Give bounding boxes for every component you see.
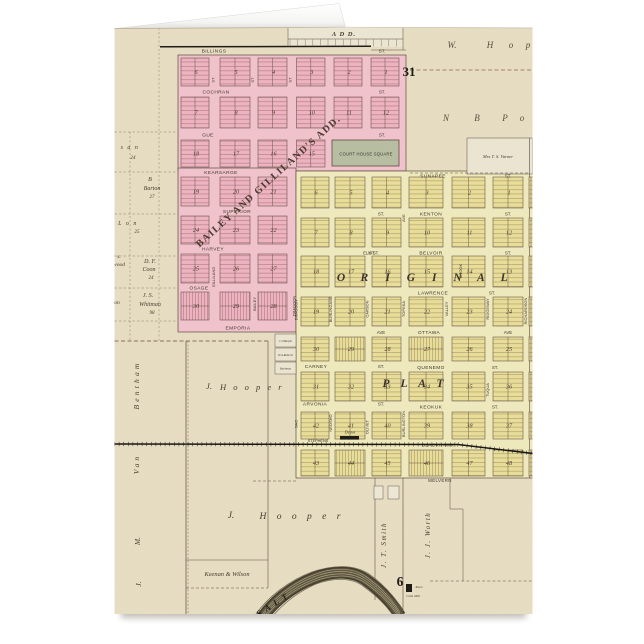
svg-text:ST.: ST. — [492, 365, 498, 370]
svg-text:ARVONIA: ARVONIA — [303, 402, 328, 408]
svg-text:RICHARDSON: RICHARDSON — [523, 297, 528, 324]
svg-text:5: 5 — [349, 190, 352, 197]
svg-text:39: 39 — [423, 423, 430, 430]
svg-text:4: 4 — [386, 190, 389, 197]
svg-text:OTTAWA: OTTAWA — [418, 330, 441, 336]
svg-text:98: 98 — [150, 311, 156, 316]
svg-text:30: 30 — [312, 346, 320, 353]
svg-text:R: R — [359, 272, 368, 284]
svg-text:BILLINGS: BILLINGS — [202, 49, 227, 55]
svg-text:28: 28 — [384, 346, 391, 353]
svg-text:o: o — [509, 40, 514, 50]
svg-text:25: 25 — [506, 346, 512, 353]
svg-text:GUE: GUE — [202, 133, 214, 139]
svg-text:ST.: ST. — [505, 251, 511, 256]
svg-text:COURT HOUSE SQUARE: COURT HOUSE SQUARE — [339, 152, 392, 157]
svg-text:38: 38 — [465, 423, 473, 430]
svg-text:KEARSARGE: KEARSARGE — [204, 170, 237, 176]
svg-text:43: 43 — [313, 460, 319, 467]
svg-text:18: 18 — [193, 151, 200, 158]
svg-text:Coon: Coon — [142, 267, 155, 273]
svg-text:24: 24 — [193, 227, 199, 234]
svg-text:OLIVET: OLIVET — [365, 419, 370, 434]
svg-text:W.A.Roberts: W.A.Roberts — [278, 353, 294, 357]
svg-text:o: o — [520, 113, 525, 123]
svg-text:T: T — [436, 378, 444, 390]
svg-text:26: 26 — [466, 346, 473, 353]
svg-text:10: 10 — [309, 110, 316, 117]
svg-text:J. S.: J. S. — [143, 293, 153, 299]
svg-text:OSAGE: OSAGE — [189, 286, 208, 292]
svg-text:3: 3 — [424, 190, 428, 197]
svg-text:35: 35 — [465, 384, 472, 391]
svg-text:s a n: s a n — [121, 145, 140, 151]
svg-text:N: N — [442, 113, 450, 123]
svg-text:5: 5 — [234, 69, 237, 76]
svg-text:ELM ST.: ELM ST. — [363, 251, 379, 256]
svg-text:Bentham: Bentham — [132, 360, 141, 409]
svg-text:Keen: Keen — [415, 585, 423, 589]
svg-text:ST.: ST. — [505, 212, 511, 217]
svg-text:14: 14 — [466, 269, 472, 276]
svg-text:Mrs T. S. Varner: Mrs T. S. Varner — [482, 154, 513, 159]
svg-text:Depot: Depot — [344, 430, 357, 435]
svg-text:27: 27 — [270, 266, 277, 273]
svg-text:ST.: ST. — [378, 212, 384, 217]
svg-text:20: 20 — [348, 309, 355, 316]
svg-text:44: 44 — [348, 460, 354, 467]
svg-text:30: 30 — [192, 303, 200, 310]
svg-text:D. F.: D. F. — [143, 259, 156, 265]
svg-text:47: 47 — [466, 460, 473, 467]
svg-text:Barton: Barton — [144, 186, 161, 192]
svg-text:27: 27 — [424, 346, 431, 353]
svg-text:11: 11 — [346, 110, 352, 117]
svg-text:24: 24 — [149, 276, 155, 281]
svg-text:A: A — [476, 272, 485, 284]
svg-text:4: 4 — [272, 69, 275, 76]
svg-text:48: 48 — [506, 460, 513, 467]
svg-text:24: 24 — [506, 309, 512, 316]
svg-text:P: P — [501, 113, 508, 123]
svg-text:BURLINGTON: BURLINGTON — [401, 411, 406, 437]
svg-text:ST.: ST. — [379, 49, 386, 54]
svg-text:Van: Van — [132, 454, 141, 474]
svg-text:L: L — [500, 272, 508, 284]
svg-text:46: 46 — [424, 460, 431, 467]
svg-text:25: 25 — [135, 230, 141, 235]
svg-text:19: 19 — [193, 189, 199, 196]
svg-text:B: B — [148, 177, 152, 183]
svg-text:ST.: ST. — [378, 364, 384, 369]
svg-text:22: 22 — [270, 227, 276, 234]
svg-text:36: 36 — [505, 384, 513, 391]
svg-text:s.: s. — [117, 254, 121, 260]
svg-text:1: 1 — [384, 69, 387, 76]
svg-text:9: 9 — [272, 110, 275, 117]
svg-text:MELVERN: MELVERN — [428, 478, 452, 483]
svg-text:I: I — [384, 272, 390, 284]
svg-text:VALLEY: VALLEY — [444, 301, 449, 316]
svg-text:32: 32 — [347, 384, 354, 391]
svg-text:wood: wood — [113, 262, 125, 268]
svg-text:STEPHENS: STEPHENS — [308, 439, 329, 443]
svg-text:RIDGEWAY: RIDGEWAY — [485, 298, 490, 320]
svg-text:A: A — [417, 378, 426, 390]
svg-text:3: 3 — [309, 69, 313, 76]
svg-text:TOPEKA: TOPEKA — [401, 301, 406, 317]
svg-text:LAWRENCE: LAWRENCE — [418, 291, 448, 297]
svg-text:2: 2 — [347, 69, 350, 76]
svg-text:P: P — [382, 378, 390, 390]
svg-text:28: 28 — [270, 303, 277, 310]
svg-text:COCHRAN: COCHRAN — [202, 90, 229, 96]
svg-text:37: 37 — [505, 423, 513, 430]
svg-text:H o o p e r: H o o p e r — [219, 382, 284, 392]
svg-text:SUNAPEE: SUNAPEE — [420, 174, 446, 180]
svg-text:ST.: ST. — [505, 174, 511, 179]
svg-text:10: 10 — [424, 230, 431, 237]
svg-text:AVE: AVE — [401, 214, 406, 222]
svg-text:ST: ST — [211, 77, 216, 83]
svg-text:23: 23 — [233, 227, 239, 234]
svg-text:GILLILAND: GILLILAND — [211, 267, 216, 288]
svg-text:31: 31 — [312, 384, 319, 391]
svg-text:BURLINGAME: BURLINGAME — [328, 295, 333, 322]
svg-text:25: 25 — [193, 266, 199, 273]
svg-text:A D D.: A D D. — [331, 31, 356, 38]
svg-text:BAILEY: BAILEY — [252, 297, 257, 311]
svg-text:p: p — [525, 40, 531, 50]
svg-text:CARSON: CARSON — [365, 300, 370, 317]
svg-text:21: 21 — [270, 189, 276, 196]
svg-text:HARVEY: HARVEY — [202, 247, 224, 253]
svg-text:11: 11 — [467, 230, 473, 237]
svg-text:24: 24 — [131, 156, 137, 161]
svg-text:H: H — [486, 40, 494, 50]
svg-text:ST.: ST. — [378, 402, 384, 407]
svg-text:6: 6 — [397, 574, 404, 589]
svg-text:L: L — [399, 378, 407, 390]
svg-text:31: 31 — [403, 64, 416, 79]
svg-text:2: 2 — [468, 190, 471, 197]
svg-text:ST.: ST. — [492, 405, 498, 410]
svg-text:26: 26 — [233, 266, 240, 273]
svg-text:NEOSHO: NEOSHO — [328, 414, 333, 431]
svg-text:L o n: L o n — [117, 221, 138, 227]
svg-text:AVE: AVE — [504, 330, 513, 335]
svg-text:J.: J. — [206, 381, 212, 391]
svg-text:ST.: ST. — [379, 133, 385, 138]
svg-text:QUENEMO: QUENEMO — [417, 365, 445, 371]
svg-text:SAC: SAC — [294, 420, 299, 428]
svg-text:I: I — [431, 272, 437, 284]
svg-text:on: on — [114, 300, 120, 306]
svg-text:16: 16 — [270, 151, 277, 158]
svg-text:9: 9 — [386, 230, 389, 237]
svg-text:H o o p e r: H o o p e r — [259, 512, 345, 522]
svg-text:ST.: ST. — [379, 90, 385, 95]
svg-text:21: 21 — [384, 309, 390, 316]
svg-text:29: 29 — [348, 346, 354, 353]
svg-text:W.: W. — [448, 40, 457, 50]
svg-text:KENTON: KENTON — [420, 212, 442, 218]
svg-text:1: 1 — [507, 190, 510, 197]
svg-text:ST: ST — [288, 77, 293, 83]
svg-text:AVE: AVE — [377, 330, 386, 335]
svg-text:Buckman: Buckman — [280, 367, 292, 371]
svg-text:N: N — [452, 272, 462, 284]
svg-text:J. J. Worth: J. J. Worth — [424, 512, 432, 559]
svg-text:22: 22 — [424, 309, 430, 316]
svg-text:ST.: ST. — [489, 291, 495, 296]
svg-text:J.J.Marple: J.J.Marple — [279, 339, 293, 343]
svg-text:Whitman: Whitman — [139, 302, 161, 308]
svg-text:TUQUA: TUQUA — [485, 383, 490, 397]
svg-text:J.: J. — [134, 581, 143, 586]
svg-text:17: 17 — [348, 269, 355, 276]
svg-text:17: 17 — [233, 151, 240, 158]
svg-text:42: 42 — [313, 423, 319, 430]
svg-text:Grist Mill: Grist Mill — [406, 594, 420, 598]
svg-text:12: 12 — [383, 110, 389, 117]
svg-text:Keenan & Wilson: Keenan & Wilson — [203, 571, 249, 578]
svg-text:CARNEY: CARNEY — [305, 364, 328, 370]
svg-text:O: O — [337, 272, 345, 284]
svg-text:G: G — [407, 272, 416, 284]
svg-text:18: 18 — [313, 269, 320, 276]
svg-text:27: 27 — [150, 195, 156, 200]
svg-text:J.: J. — [228, 511, 235, 521]
svg-text:BELVOIR: BELVOIR — [419, 251, 442, 257]
svg-text:20: 20 — [233, 189, 240, 196]
svg-text:40: 40 — [384, 423, 391, 430]
svg-text:EMPORIA: EMPORIA — [226, 326, 251, 332]
svg-text:12: 12 — [506, 230, 512, 237]
svg-text:DRAGOON: DRAGOON — [294, 300, 299, 321]
svg-text:ST: ST — [250, 77, 255, 83]
svg-text:B: B — [474, 113, 480, 123]
svg-text:M.: M. — [133, 537, 142, 546]
svg-text:15: 15 — [424, 269, 430, 276]
svg-text:19: 19 — [313, 309, 319, 316]
svg-text:23: 23 — [466, 309, 472, 316]
svg-text:J. T. Smith: J. T. Smith — [380, 522, 388, 568]
svg-text:29: 29 — [233, 303, 239, 310]
svg-text:KEOKUK: KEOKUK — [420, 405, 443, 411]
svg-text:45: 45 — [384, 460, 390, 467]
